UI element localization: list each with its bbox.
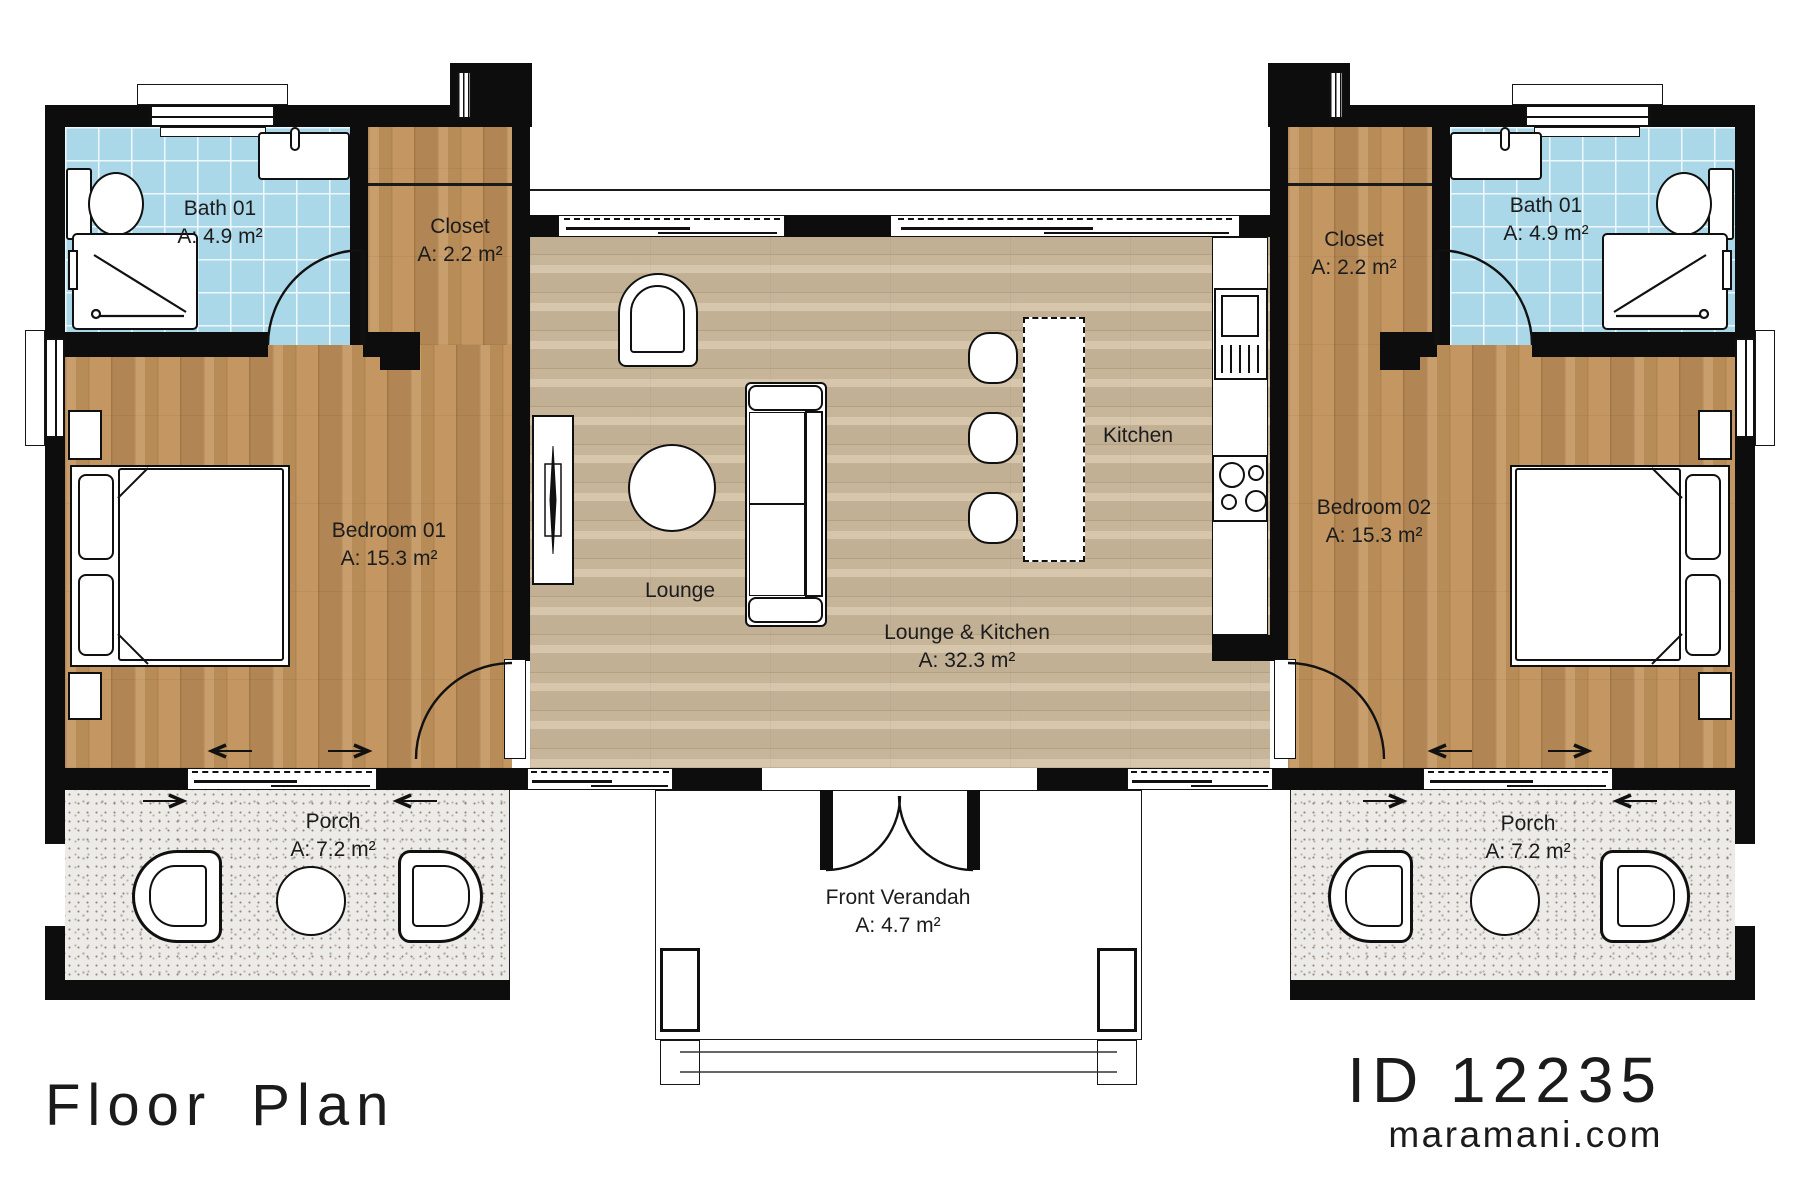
porch-chair xyxy=(398,850,483,943)
sofa-armrest xyxy=(748,385,823,411)
room-name: Closet xyxy=(1311,226,1396,254)
pillow xyxy=(1685,474,1721,560)
wall xyxy=(45,980,510,1000)
verandah-column-right xyxy=(1097,948,1137,1032)
room-label-lounge-kitchen: Lounge & Kitchen A: 32.3 m² xyxy=(884,619,1050,674)
room-area: A: 4.9 m² xyxy=(177,223,262,251)
page-title: Floor Plan xyxy=(45,1072,395,1139)
closet-left-lintel xyxy=(368,183,512,186)
verandah-steps xyxy=(680,1052,1117,1072)
wall xyxy=(1270,768,1423,790)
cooktop-icon xyxy=(1212,455,1268,522)
bar-stool xyxy=(968,412,1018,464)
wall xyxy=(530,215,558,237)
porch-table xyxy=(276,866,346,936)
room-name: Lounge xyxy=(645,577,715,605)
room-area: A: 7.2 m² xyxy=(1485,838,1570,866)
burner xyxy=(1245,490,1267,512)
bar-stool xyxy=(968,492,1018,544)
room-name: Closet xyxy=(417,213,502,241)
wall xyxy=(673,768,762,790)
coffee-table xyxy=(628,444,716,532)
roof-line-lounge xyxy=(530,189,1270,191)
pillow xyxy=(78,574,114,656)
window-sill xyxy=(160,127,266,137)
door-leaf-bedroom-01 xyxy=(504,659,526,759)
bed-bedroom-01 xyxy=(70,465,290,667)
wall xyxy=(1532,332,1755,357)
floor-plan-canvas: Bath 01 A: 4.9 m² Closet A: 2.2 m² Bedro… xyxy=(0,0,1800,1200)
bar-counter xyxy=(1023,317,1085,562)
wall xyxy=(785,215,890,237)
room-label-porch-left: Porch A: 7.2 m² xyxy=(290,808,375,863)
window-frame xyxy=(25,330,45,446)
pillow xyxy=(1685,574,1721,656)
porch-table xyxy=(1470,866,1540,936)
shower-valve-left xyxy=(68,250,78,290)
window-bedroom-02 xyxy=(1735,338,1755,438)
chair-cushion xyxy=(412,865,470,927)
window-frame xyxy=(137,84,288,105)
plan-id: ID 12235 xyxy=(1347,1048,1663,1112)
closet-right-lintel xyxy=(1288,183,1432,186)
toilet-bowl-left xyxy=(88,172,144,236)
sliding-window-lounge-top-right xyxy=(890,215,1240,237)
room-area: A: 15.3 m² xyxy=(332,545,446,573)
sofa-cushion xyxy=(749,412,805,504)
sink-left xyxy=(258,132,350,180)
nightstand xyxy=(68,410,102,460)
wall xyxy=(1735,105,1755,338)
porch-chair xyxy=(1600,850,1690,943)
sofa-backrest xyxy=(805,411,823,597)
chair-cushion xyxy=(1345,865,1403,927)
room-name: Bath 01 xyxy=(1503,192,1588,220)
wall xyxy=(1240,215,1270,237)
window-bath-left xyxy=(150,105,275,127)
window-sill xyxy=(1534,127,1640,137)
bar-stool xyxy=(968,332,1018,384)
faucet-left xyxy=(290,127,300,151)
mattress xyxy=(1515,468,1681,661)
window-frame xyxy=(1512,84,1663,105)
room-area: A: 2.2 m² xyxy=(1311,254,1396,282)
nightstand xyxy=(1698,410,1732,460)
freezer-box xyxy=(1221,295,1259,337)
armchair-cushion xyxy=(630,285,685,353)
sliding-door-porch-right xyxy=(1423,768,1613,790)
wall xyxy=(377,768,530,790)
shower-right xyxy=(1602,233,1728,330)
verandah-step-right xyxy=(1097,1040,1137,1085)
room-label-closet-right: Closet A: 2.2 m² xyxy=(1311,226,1396,281)
sofa-cushion xyxy=(749,504,805,596)
wall xyxy=(1290,980,1755,1000)
nightstand xyxy=(1698,672,1732,720)
fridge-icon xyxy=(1214,288,1268,380)
burner xyxy=(1248,465,1264,481)
sliding-window-lounge-top-left xyxy=(558,215,785,237)
armchair xyxy=(618,273,698,367)
room-name: Porch xyxy=(1485,810,1570,838)
door-leaf-verandah-right xyxy=(967,790,980,870)
verandah-column-left xyxy=(660,948,700,1032)
room-label-bath-right: Bath 01 A: 4.9 m² xyxy=(1503,192,1588,247)
bumpout-window-left xyxy=(457,72,471,118)
porch-chair xyxy=(1328,850,1413,943)
wall-kitchen-stub xyxy=(1212,635,1270,661)
sofa-armrest xyxy=(748,597,823,623)
wall xyxy=(45,332,268,357)
fridge-grille xyxy=(1221,345,1259,373)
wall xyxy=(45,768,187,790)
room-name: Bedroom 01 xyxy=(332,517,446,545)
room-area: A: 7.2 m² xyxy=(290,836,375,864)
wall xyxy=(1432,127,1450,345)
sliding-window-lounge-bottom-right xyxy=(1127,768,1273,790)
bed-bedroom-02 xyxy=(1510,465,1730,667)
sliding-window-lounge-bottom-left xyxy=(527,768,673,790)
tv-cabinet xyxy=(532,415,574,585)
mattress xyxy=(118,468,284,661)
zone-label-lounge: Lounge xyxy=(645,577,715,605)
room-area: A: 32.3 m² xyxy=(884,647,1050,675)
website: maramani.com xyxy=(1347,1112,1663,1158)
branding-block: ID 12235 maramani.com xyxy=(1347,1048,1663,1158)
bumpout-window-right xyxy=(1329,72,1343,118)
room-label-bedroom-02: Bedroom 02 A: 15.3 m² xyxy=(1317,494,1431,549)
chair-cushion xyxy=(1617,865,1675,927)
window-frame xyxy=(1755,330,1775,446)
window-bedroom-01 xyxy=(45,338,65,438)
burner xyxy=(1221,494,1237,510)
door-leaf-bedroom-02 xyxy=(1274,659,1296,759)
porch-left-opening xyxy=(45,843,65,927)
room-name: Front Verandah xyxy=(826,884,971,912)
sink-right xyxy=(1450,132,1542,180)
wall xyxy=(45,105,65,338)
faucet-right xyxy=(1500,127,1510,151)
nightstand xyxy=(68,672,102,720)
room-area: A: 2.2 m² xyxy=(417,241,502,269)
room-name: Kitchen xyxy=(1103,422,1173,450)
room-area: A: 4.7 m² xyxy=(826,912,971,940)
room-label-bedroom-01: Bedroom 01 A: 15.3 m² xyxy=(332,517,446,572)
porch-right-opening xyxy=(1735,843,1755,927)
room-label-porch-right: Porch A: 7.2 m² xyxy=(1485,810,1570,865)
wall xyxy=(512,127,530,661)
room-name: Bath 01 xyxy=(177,195,262,223)
room-name: Bedroom 02 xyxy=(1317,494,1431,522)
wall xyxy=(1380,350,1420,370)
room-area: A: 15.3 m² xyxy=(1317,522,1431,550)
room-label-front-verandah: Front Verandah A: 4.7 m² xyxy=(826,884,971,939)
chair-cushion xyxy=(149,865,207,927)
wall xyxy=(1270,127,1288,661)
sofa xyxy=(745,382,827,627)
wall xyxy=(1613,768,1755,790)
pillow xyxy=(78,474,114,560)
room-area: A: 4.9 m² xyxy=(1503,220,1588,248)
toilet-bowl-right xyxy=(1656,172,1712,236)
zone-label-kitchen: Kitchen xyxy=(1103,422,1173,450)
wall xyxy=(1037,768,1127,790)
verandah-step-left xyxy=(660,1040,700,1085)
room-label-bath-left: Bath 01 A: 4.9 m² xyxy=(177,195,262,250)
room-name: Porch xyxy=(290,808,375,836)
shower-valve-right xyxy=(1722,250,1732,290)
wall xyxy=(350,127,368,345)
room-label-closet-left: Closet A: 2.2 m² xyxy=(417,213,502,268)
wall xyxy=(380,350,420,370)
room-name: Lounge & Kitchen xyxy=(884,619,1050,647)
window-bath-right xyxy=(1525,105,1650,127)
burner xyxy=(1219,462,1245,488)
door-leaf-verandah-left xyxy=(820,790,833,870)
sliding-door-porch-left xyxy=(187,768,377,790)
porch-chair xyxy=(132,850,222,943)
